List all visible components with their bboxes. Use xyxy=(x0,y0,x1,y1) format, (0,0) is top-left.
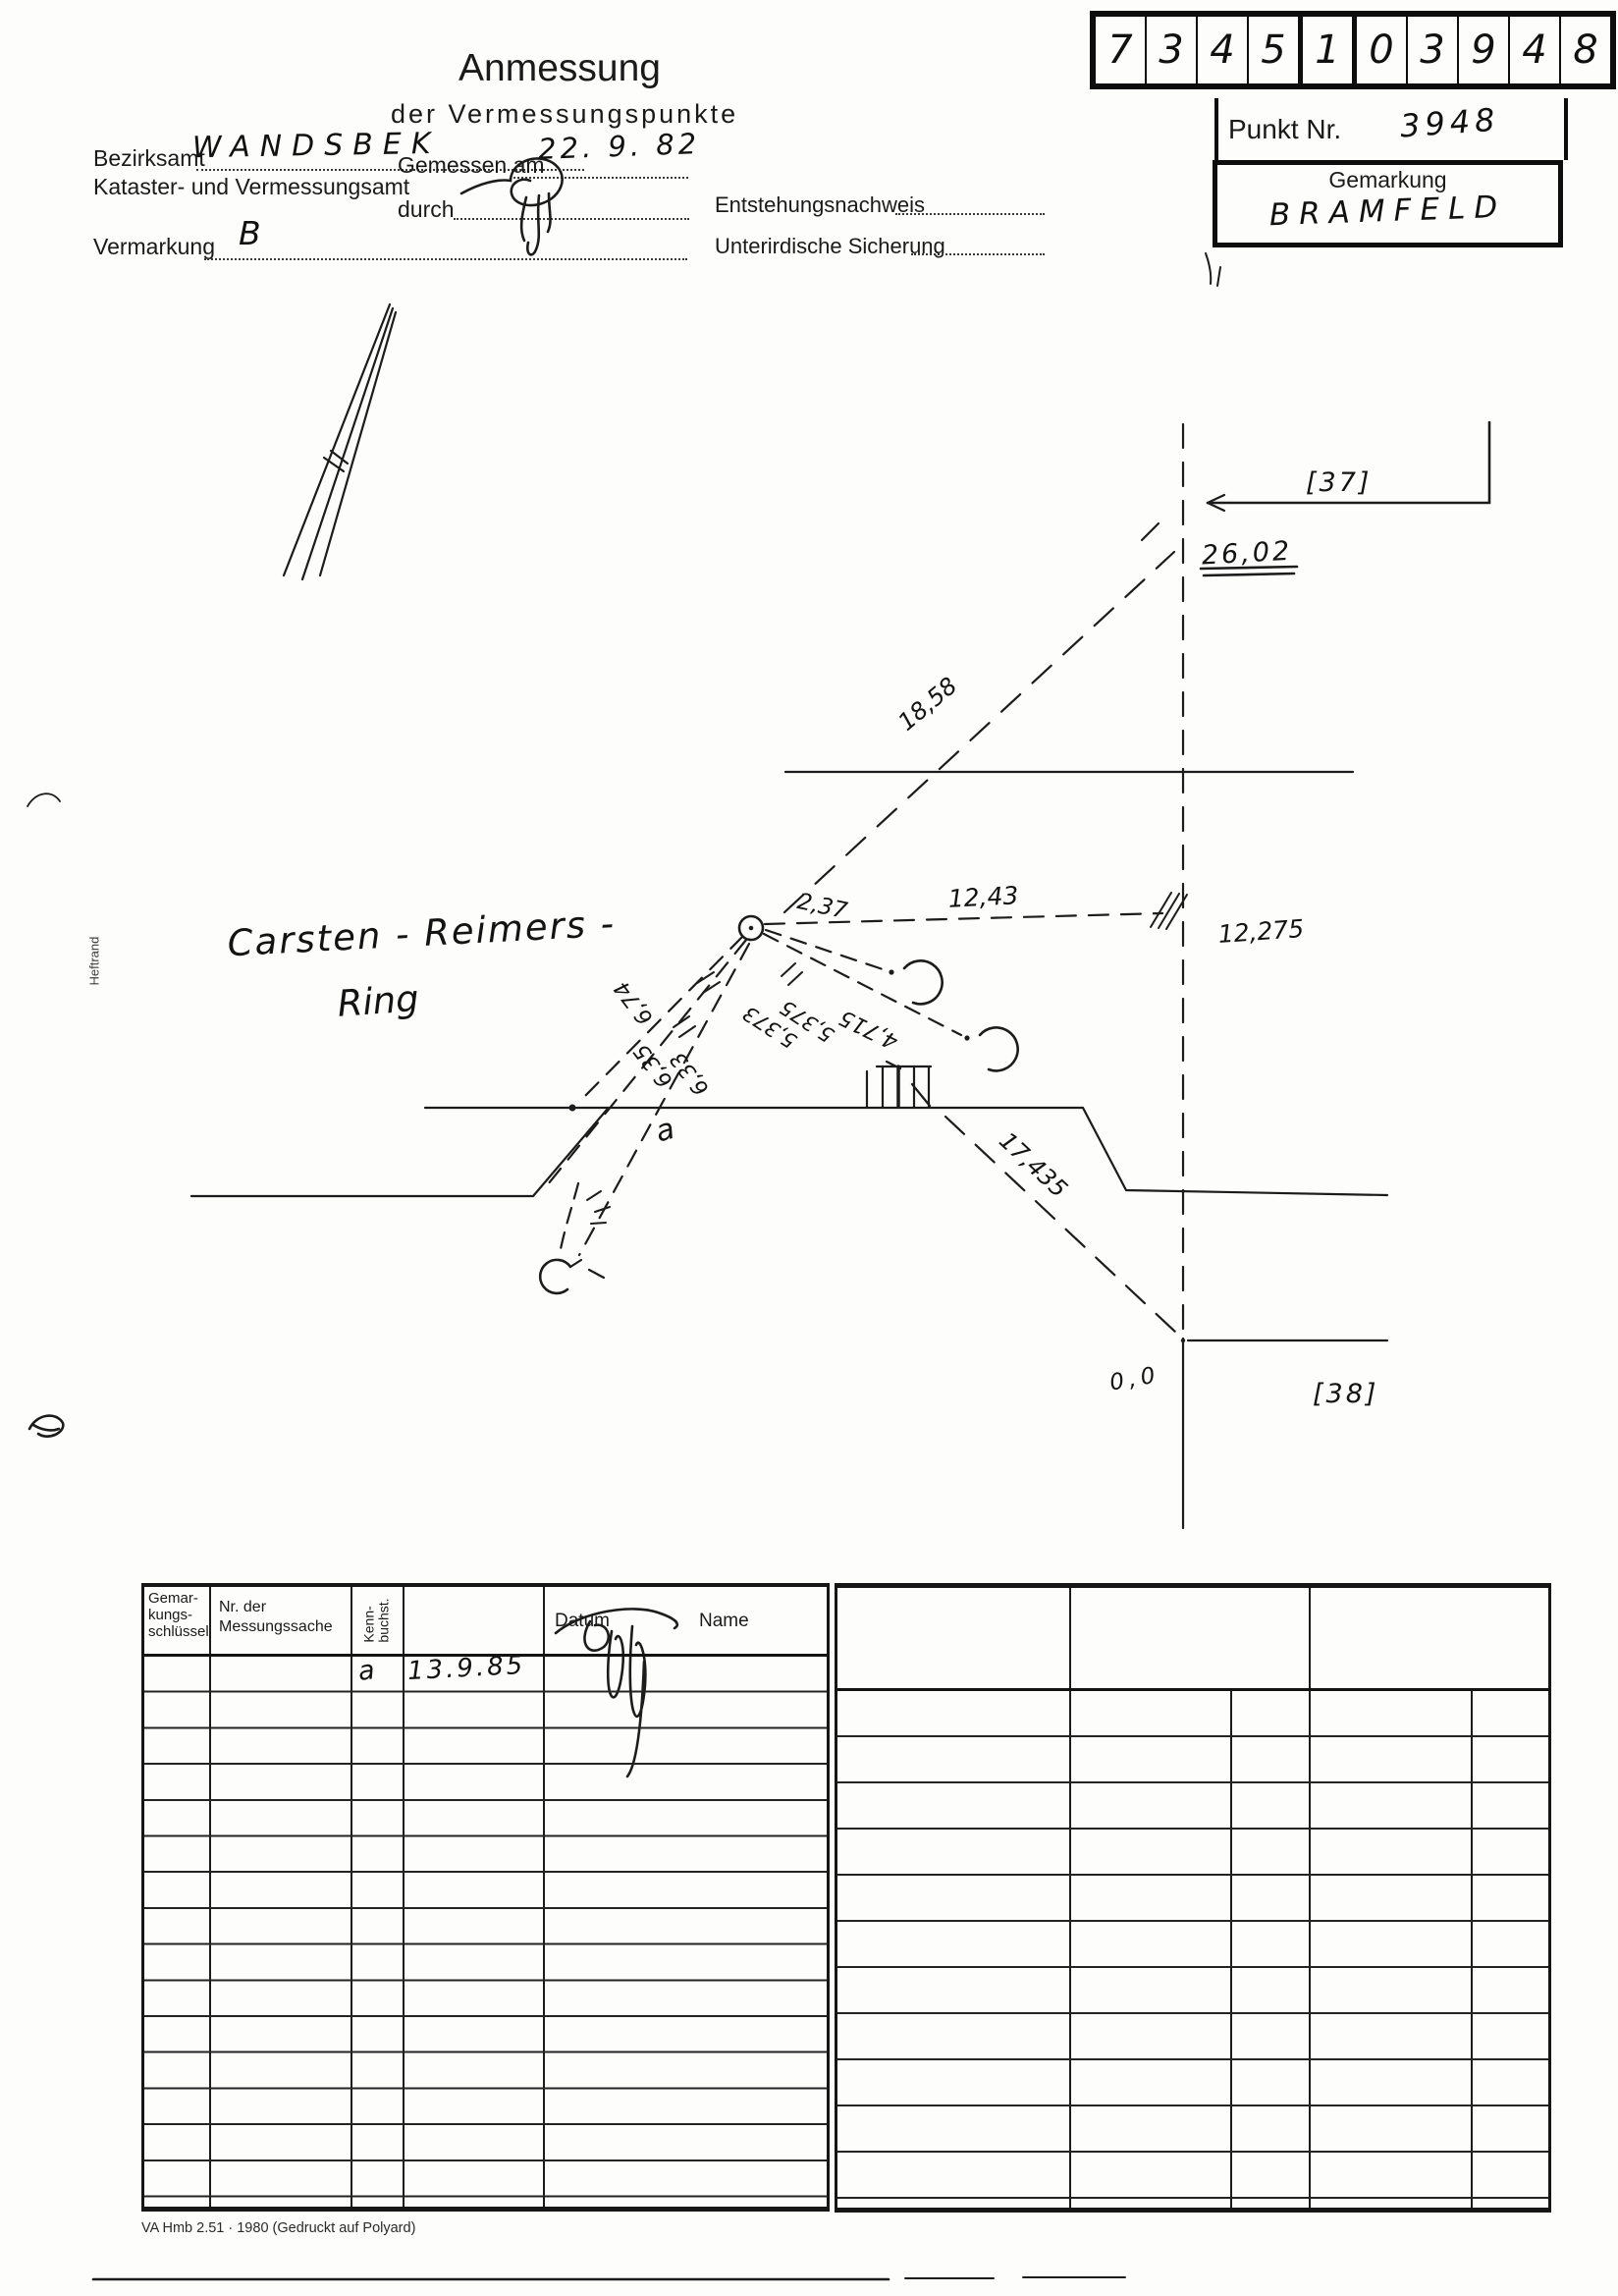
punkt-nr-label: Punkt Nr. xyxy=(1228,114,1341,145)
id-digit-cell: 3 xyxy=(1147,17,1198,83)
scanned-survey-form: 7 3 4 5 1 0 3 9 4 8 Punkt Nr. 3948 Gemar… xyxy=(0,0,1618,2296)
vermarkung-value: B xyxy=(239,214,261,252)
header-line: Kenn- xyxy=(361,1598,376,1642)
row1-datum-value: 13.9.85 xyxy=(406,1651,526,1686)
street-name-line2: Ring xyxy=(336,977,420,1025)
label-letter-a: a xyxy=(652,1112,678,1150)
gemessen-am-label: Gemessen am xyxy=(398,152,545,179)
pencil-strokes xyxy=(284,304,396,579)
street-name-line1: Carsten - Reimers - xyxy=(227,902,617,965)
gemarkung-box: Gemarkung BRAMFELD xyxy=(1213,160,1563,247)
header-line: buchst. xyxy=(376,1598,391,1642)
reference-38-lines xyxy=(1181,1339,1387,1342)
gemessen-am-line xyxy=(513,177,688,179)
durch-line xyxy=(454,218,689,220)
label-12-275: 12,275 xyxy=(1217,914,1305,949)
header-line: Messungssache xyxy=(219,1617,333,1637)
bezirksamt-label: Bezirksamt xyxy=(93,145,205,172)
id-digit-cell: 4 xyxy=(1510,17,1561,83)
label-ref-38: [38] xyxy=(1313,1379,1378,1409)
id-digit-cell: 9 xyxy=(1459,17,1510,83)
measurement-rays xyxy=(544,552,1353,1334)
label-5-373: 5,373 xyxy=(738,1001,800,1053)
col-header-datum: Datum xyxy=(555,1613,610,1629)
label-2-37: 2,37 xyxy=(795,889,850,924)
rotated-header: Kenn- buchst. xyxy=(361,1598,391,1642)
label-6-33: 6,33 xyxy=(666,1047,714,1100)
vermarkung-label: Vermarkung xyxy=(93,234,215,260)
label-6-74: 6,74 xyxy=(610,976,658,1029)
vermarkung-line xyxy=(204,258,687,260)
street-lines xyxy=(191,1105,1387,1197)
header-line: Nr. der xyxy=(219,1598,333,1617)
reference-37-lines xyxy=(1142,422,1489,575)
durch-label: durch xyxy=(398,196,455,223)
margin-scribbles xyxy=(27,253,1220,1437)
measurement-log-table: Gemar- kungs- schlüssel Nr. der Messungs… xyxy=(141,1583,830,2212)
unterirdische-sicherung-line xyxy=(911,253,1045,255)
row1-kennbuchstabe-value: a xyxy=(356,1655,376,1687)
survey-point-marker xyxy=(739,916,763,940)
gemessen-am-value: 22. 9. 82 xyxy=(537,127,700,166)
label-18-58: 18,58 xyxy=(893,672,963,737)
header-line: kungs- xyxy=(148,1607,209,1623)
kataster-label: Kataster- und Vermessungsamt xyxy=(93,174,409,200)
id-digit-cell: 8 xyxy=(1561,17,1610,83)
label-12-43: 12,43 xyxy=(947,881,1019,913)
sketch-labels: [37] 26,02 18,58 12,43 12,275 2,37 4,715… xyxy=(227,467,1379,1409)
col-header-name: Name xyxy=(699,1613,749,1629)
entstehungsnachweis-line xyxy=(895,213,1045,215)
table-row-lines xyxy=(144,1657,827,2207)
id-digit-cell: 0 xyxy=(1357,17,1408,83)
form-subtitle: der Vermessungspunkte xyxy=(391,99,738,130)
label-5-375: 5,375 xyxy=(776,995,837,1047)
gate-symbol xyxy=(867,1062,931,1107)
label-4-715: 4,715 xyxy=(836,1005,902,1054)
point-id-digit-boxes: 7 3 4 5 1 0 3 9 4 8 xyxy=(1090,11,1616,89)
right-log-table xyxy=(835,1583,1551,2213)
header-line: schlüssel xyxy=(148,1623,209,1640)
header-line: Gemar- xyxy=(148,1590,209,1607)
id-digit-cell: 7 xyxy=(1096,17,1147,83)
id-digit-cell: 1 xyxy=(1303,17,1357,83)
punkt-nr-box: Punkt Nr. 3948 xyxy=(1214,98,1568,160)
object-symbols xyxy=(540,960,1017,1293)
unterirdische-sicherung-label: Unterirdische Sicherung xyxy=(715,234,945,259)
label-26-02: 26,02 xyxy=(1201,536,1293,572)
table-row-lines xyxy=(837,1691,1548,2208)
heftrand-margin-label: Heftrand xyxy=(87,876,102,986)
punkt-nr-value: 3948 xyxy=(1399,101,1501,145)
label-ref-37: [37] xyxy=(1306,467,1372,498)
label-17-435: 17,435 xyxy=(994,1126,1073,1203)
col-header-gemarkungsschluessel: Gemar- kungs- schlüssel xyxy=(148,1590,209,1640)
id-digit-cell: 3 xyxy=(1408,17,1459,83)
id-digit-cell: 5 xyxy=(1249,17,1303,83)
col-header-kennbuchstabe: Kenn- buchst. xyxy=(351,1587,403,1654)
gemarkung-value: BRAMFELD xyxy=(1216,188,1558,235)
scan-edge-lines xyxy=(93,2277,1125,2279)
col-header-messungssache: Nr. der Messungssache xyxy=(219,1598,333,1637)
label-0-0: 0,0 xyxy=(1107,1362,1161,1396)
label-6-35: 6,35 xyxy=(629,1039,677,1092)
id-digit-cell: 4 xyxy=(1198,17,1249,83)
form-title: Anmessung xyxy=(412,47,707,90)
entstehungsnachweis-label: Entstehungsnachweis xyxy=(715,192,925,218)
form-footer-imprint: VA Hmb 2.51 · 1980 (Gedruckt auf Polyard… xyxy=(141,2220,415,2236)
